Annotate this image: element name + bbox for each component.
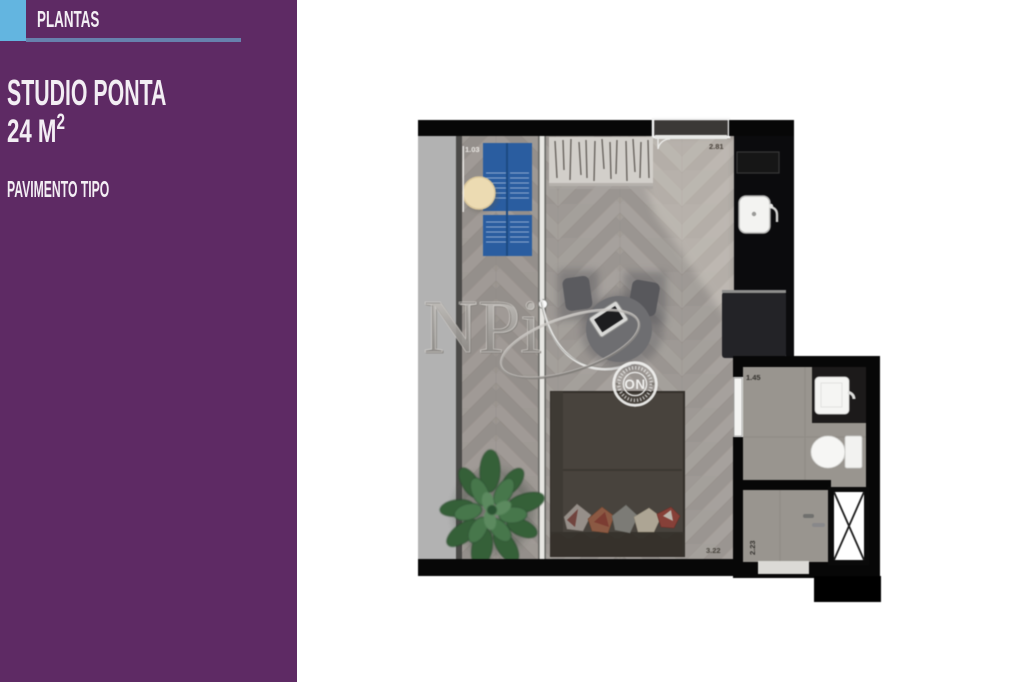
svg-text:NPi: NPi: [423, 285, 541, 369]
svg-text:ON: ON: [624, 377, 645, 392]
svg-text:1.45: 1.45: [746, 373, 761, 382]
svg-text:1.03: 1.03: [465, 145, 480, 154]
svg-text:2.23: 2.23: [748, 540, 757, 555]
svg-text:2.81: 2.81: [709, 142, 724, 151]
svg-text:3.22: 3.22: [706, 546, 721, 555]
